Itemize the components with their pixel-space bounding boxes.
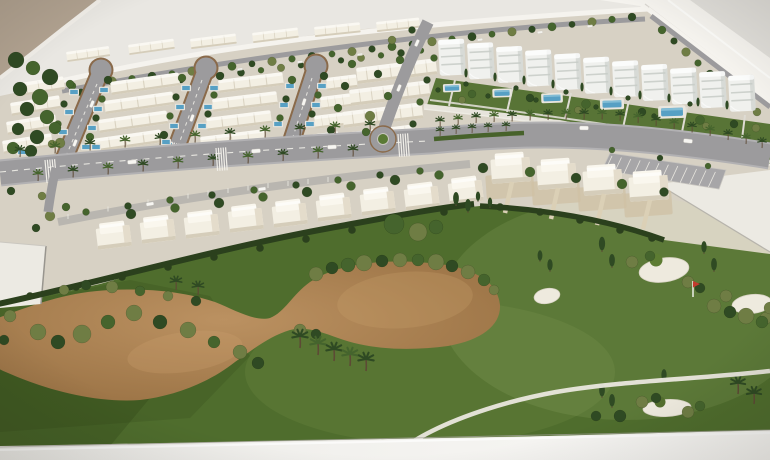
model-photo: Architectural scale model — resort maste… (0, 0, 770, 460)
photo-vignette (0, 0, 770, 460)
photo-of-architectural-model: Architectural scale model — resort maste… (0, 0, 770, 460)
